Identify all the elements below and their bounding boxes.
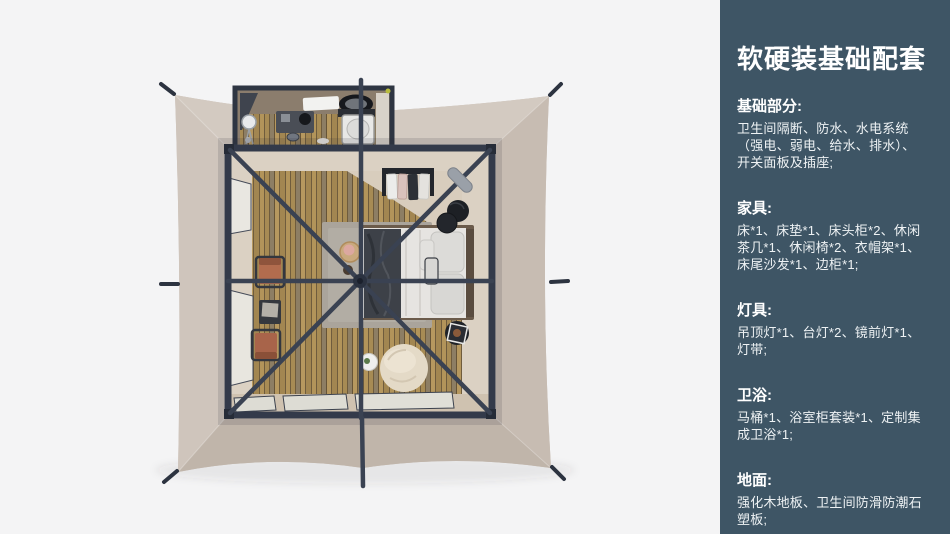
section-bath: 卫浴: 马桶*1、浴室柜套装*1、定制集 成卫浴*1;	[737, 384, 936, 443]
section-lighting-heading: 灯具:	[737, 299, 936, 320]
slide: 软硬装基础配套 基础部分: 卫生间隔断、防水、水电系统 （强电、弱电、给水、排水…	[0, 0, 950, 534]
section-lighting: 灯具: 吊顶灯*1、台灯*2、镜前灯*1、 灯带;	[737, 299, 936, 358]
section-floor: 地面: 强化木地板、卫生间防滑防潮石 塑板;	[737, 469, 936, 528]
section-floor-line: 强化木地板、卫生间防滑防潮石	[737, 494, 936, 511]
bed-headboard	[466, 229, 474, 317]
section-furniture-line: 床*1、床垫*1、床头柜*2、休闲	[737, 222, 936, 239]
bathroom-door	[376, 93, 389, 145]
section-basics-line: 开关面板及插座;	[737, 154, 936, 171]
tea-table	[259, 300, 281, 324]
section-bath-heading: 卫浴:	[737, 384, 936, 405]
section-basics-line: 卫生间隔断、防水、水电系统	[737, 120, 936, 137]
bed	[360, 225, 474, 320]
storage-basket	[340, 242, 360, 262]
section-bath-line: 马桶*1、浴室柜套装*1、定制集	[737, 409, 936, 426]
window-left-top	[229, 178, 251, 234]
bean-bag	[380, 344, 428, 392]
tent-top-view-render	[0, 0, 720, 534]
section-basics-line: （强电、弱电、给水、排水）、	[737, 137, 936, 154]
section-furniture-line: 床尾沙发*1、边柜*1;	[737, 256, 936, 273]
section-basics-heading: 基础部分:	[737, 95, 936, 116]
spec-panel: 软硬装基础配套 基础部分: 卫生间隔断、防水、水电系统 （强电、弱电、给水、排水…	[720, 0, 950, 534]
rack-bar	[382, 168, 434, 174]
section-lighting-line: 吊顶灯*1、台灯*2、镜前灯*1、	[737, 324, 936, 341]
section-floor-heading: 地面:	[737, 469, 936, 490]
window-bottom-right	[355, 392, 454, 410]
floorplan-illustration	[0, 0, 720, 534]
section-bath-line: 成卫浴*1;	[737, 426, 936, 443]
lounge-chair-bottom	[252, 330, 280, 360]
vanity-mirror-icon	[299, 113, 311, 125]
section-furniture-heading: 家具:	[737, 197, 936, 218]
stake-mid-right-icon	[551, 281, 568, 282]
section-furniture-line: 茶几*1、休闲椅*2、衣帽架*1、	[737, 239, 936, 256]
section-basics: 基础部分: 卫生间隔断、防水、水电系统 （强电、弱电、给水、排水）、 开关面板及…	[737, 95, 936, 171]
corner-marker-icon	[386, 89, 391, 94]
section-lighting-line: 灯带;	[737, 341, 936, 358]
center-ridge-tail	[362, 418, 363, 486]
center-hub	[353, 274, 367, 288]
panel-title: 软硬装基础配套	[737, 44, 936, 75]
window-bottom-middle	[283, 394, 348, 411]
bedend-pouf-tray	[445, 321, 469, 345]
section-furniture: 家具: 床*1、床垫*1、床头柜*2、休闲 茶几*1、休闲椅*2、衣帽架*1、 …	[737, 197, 936, 273]
plant-icon	[364, 358, 370, 364]
section-floor-line: 塑板;	[737, 511, 936, 528]
bathroom-counter	[303, 96, 340, 111]
window-left-bottom	[229, 290, 253, 386]
